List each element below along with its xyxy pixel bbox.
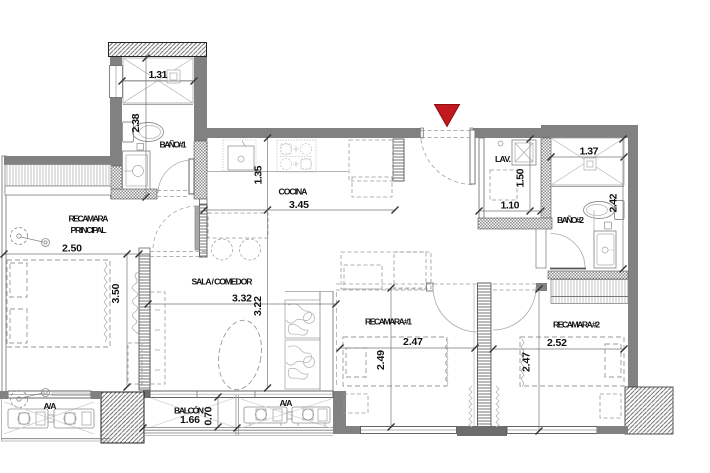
svg-text:3.22: 3.22 — [252, 296, 264, 316]
svg-text:1.37: 1.37 — [580, 146, 599, 158]
svg-text:LAV.: LAV. — [495, 154, 511, 164]
svg-text:RECAMARA #2: RECAMARA #2 — [553, 320, 600, 330]
svg-text:RECAMARA: RECAMARA — [69, 214, 109, 224]
svg-text:BAÑO#1: BAÑO#1 — [160, 140, 187, 150]
svg-text:2.42: 2.42 — [608, 193, 620, 212]
svg-text:1.66: 1.66 — [180, 414, 200, 426]
svg-text:A/A: A/A — [44, 401, 57, 411]
svg-text:1.10: 1.10 — [501, 200, 520, 212]
svg-text:A/A: A/A — [280, 398, 293, 408]
svg-text:COCINA: COCINA — [279, 187, 308, 197]
svg-text:2.50: 2.50 — [62, 243, 82, 255]
svg-text:SALA / COMEDOR: SALA / COMEDOR — [192, 277, 254, 287]
svg-text:RECAMARA #1: RECAMARA #1 — [365, 317, 412, 327]
svg-text:2.47: 2.47 — [403, 336, 423, 348]
svg-text:PRINCIPAL: PRINCIPAL — [71, 225, 107, 235]
svg-text:BAÑO#2: BAÑO#2 — [557, 215, 584, 225]
svg-text:2.49: 2.49 — [375, 350, 387, 370]
svg-text:3.50: 3.50 — [110, 283, 122, 303]
svg-text:0.70: 0.70 — [203, 406, 215, 425]
svg-text:2.38: 2.38 — [130, 113, 142, 132]
svg-text:3.45: 3.45 — [289, 199, 309, 211]
svg-text:3.32: 3.32 — [232, 293, 252, 305]
svg-text:2.47: 2.47 — [521, 352, 533, 372]
svg-text:1.50: 1.50 — [515, 168, 527, 187]
svg-text:2.52: 2.52 — [547, 337, 567, 349]
svg-text:1.31: 1.31 — [149, 69, 168, 81]
svg-text:1.35: 1.35 — [253, 165, 265, 184]
